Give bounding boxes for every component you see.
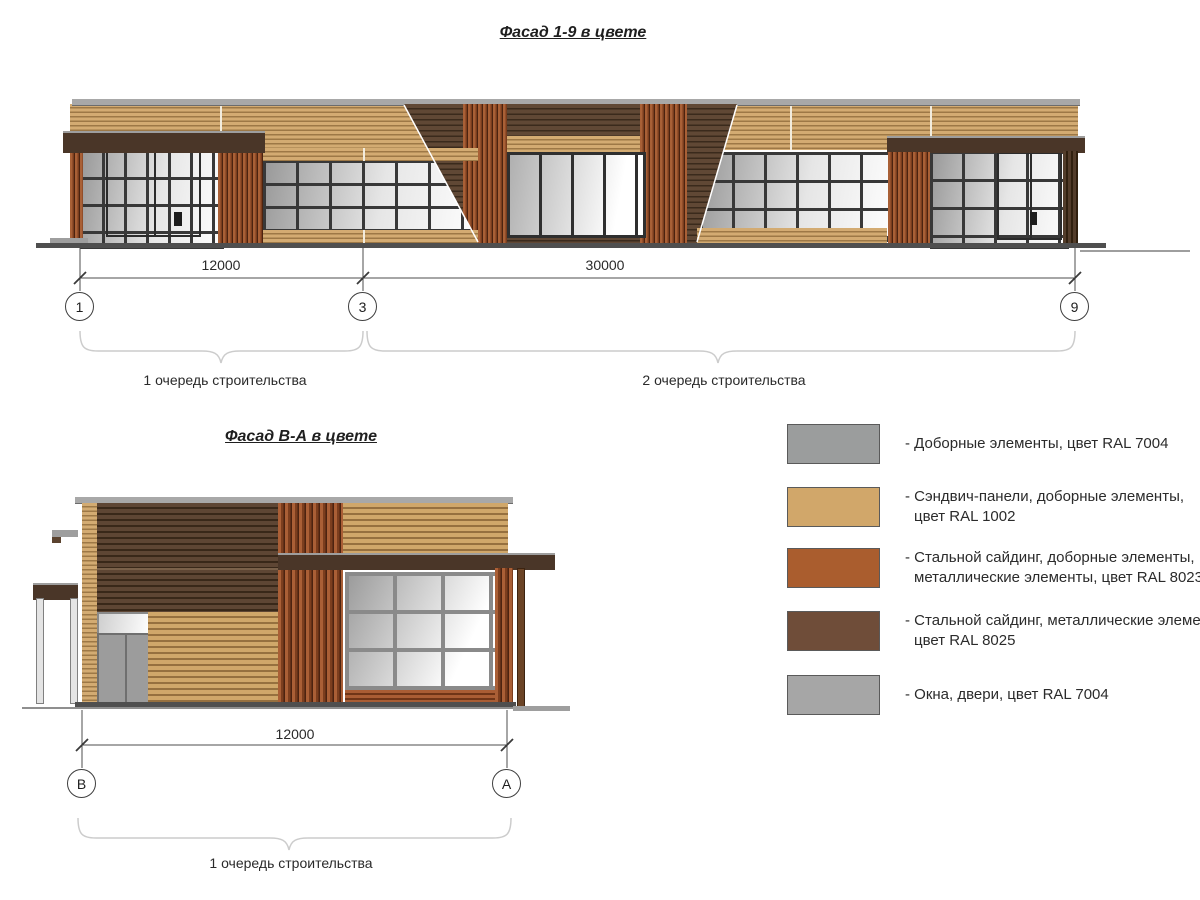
dimension-label: 30000 — [505, 257, 705, 273]
axis-marker-1: 1 — [65, 292, 94, 321]
phase-1-label: 1 очередь строительства — [141, 855, 441, 871]
axis-marker-9: 9 — [1060, 292, 1089, 321]
axis-label: А — [502, 776, 511, 792]
axis-label: В — [77, 776, 86, 792]
axis-label: 1 — [76, 299, 84, 315]
axis-label: 3 — [359, 299, 367, 315]
axis-marker-a: А — [492, 769, 521, 798]
axis-marker-3: 3 — [348, 292, 377, 321]
dimension-label: 12000 — [121, 257, 321, 273]
dimension-lines — [0, 0, 1200, 900]
phase-1-label: 1 очередь строительства — [75, 372, 375, 388]
axis-label: 9 — [1071, 299, 1079, 315]
axis-marker-b: В — [67, 769, 96, 798]
phase-2-label: 2 очередь строительства — [574, 372, 874, 388]
dimension-label: 12000 — [195, 726, 395, 742]
